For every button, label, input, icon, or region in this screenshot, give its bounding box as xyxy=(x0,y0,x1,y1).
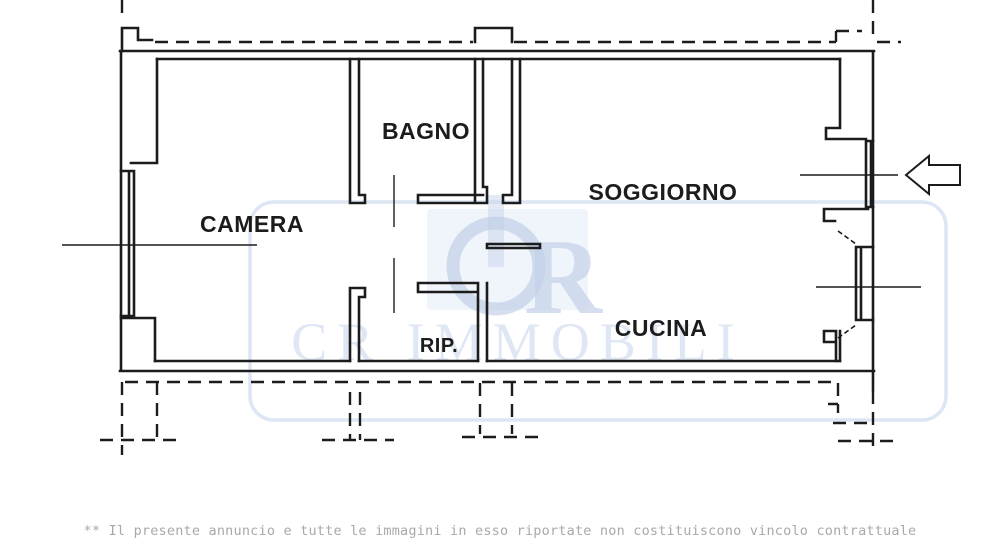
room-label-soggiorno: SOGGIORNO xyxy=(589,179,738,205)
room-label-camera: CAMERA xyxy=(200,211,304,237)
top-steps xyxy=(122,28,512,51)
room-label-cucina: CUCINA xyxy=(615,315,707,341)
camera-bagno-wall xyxy=(350,59,365,203)
window-bay-dashes xyxy=(838,231,856,338)
watermark: R CR IMMOBILI xyxy=(250,195,946,420)
disclaimer-text: ** Il presente annuncio e tutte le immag… xyxy=(0,523,1000,539)
room-label-bagno: BAGNO xyxy=(382,118,470,144)
floor-plan-canvas: R CR IMMOBILI xyxy=(0,0,1000,550)
left-wall-window xyxy=(121,59,157,361)
room-label-rip: RIP. xyxy=(420,335,458,357)
watermark-tower-icon xyxy=(488,195,504,267)
right-wall-windows xyxy=(824,59,873,361)
floor-plan-image: R CR IMMOBILI xyxy=(0,0,1000,550)
entrance-arrow-icon xyxy=(906,156,960,194)
soggiorno-west-wall xyxy=(503,59,520,203)
